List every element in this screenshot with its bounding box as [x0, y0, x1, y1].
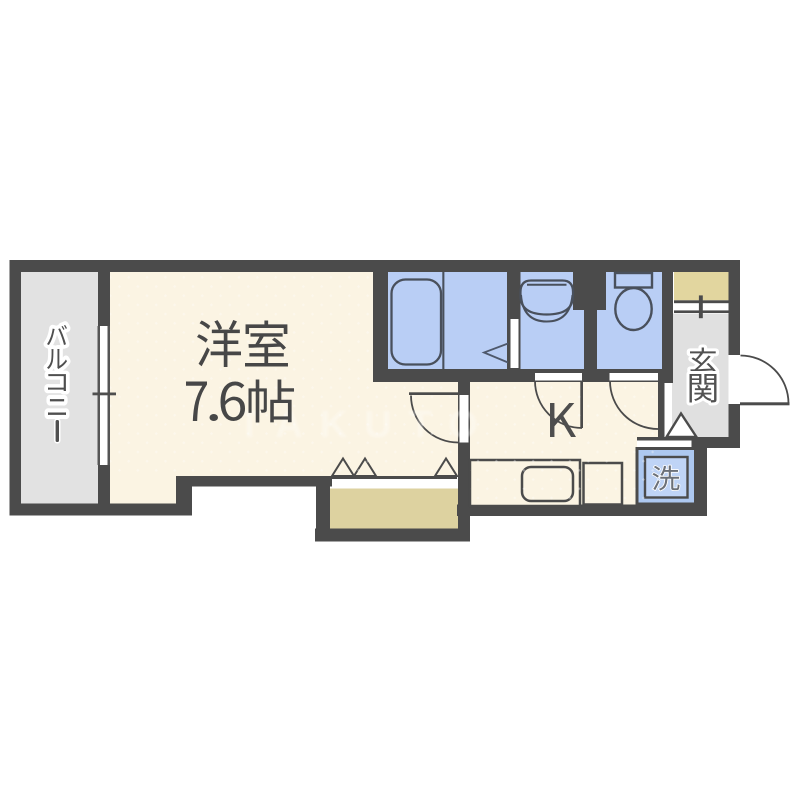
- svg-text:TAKUTO: TAKUTO: [238, 404, 495, 446]
